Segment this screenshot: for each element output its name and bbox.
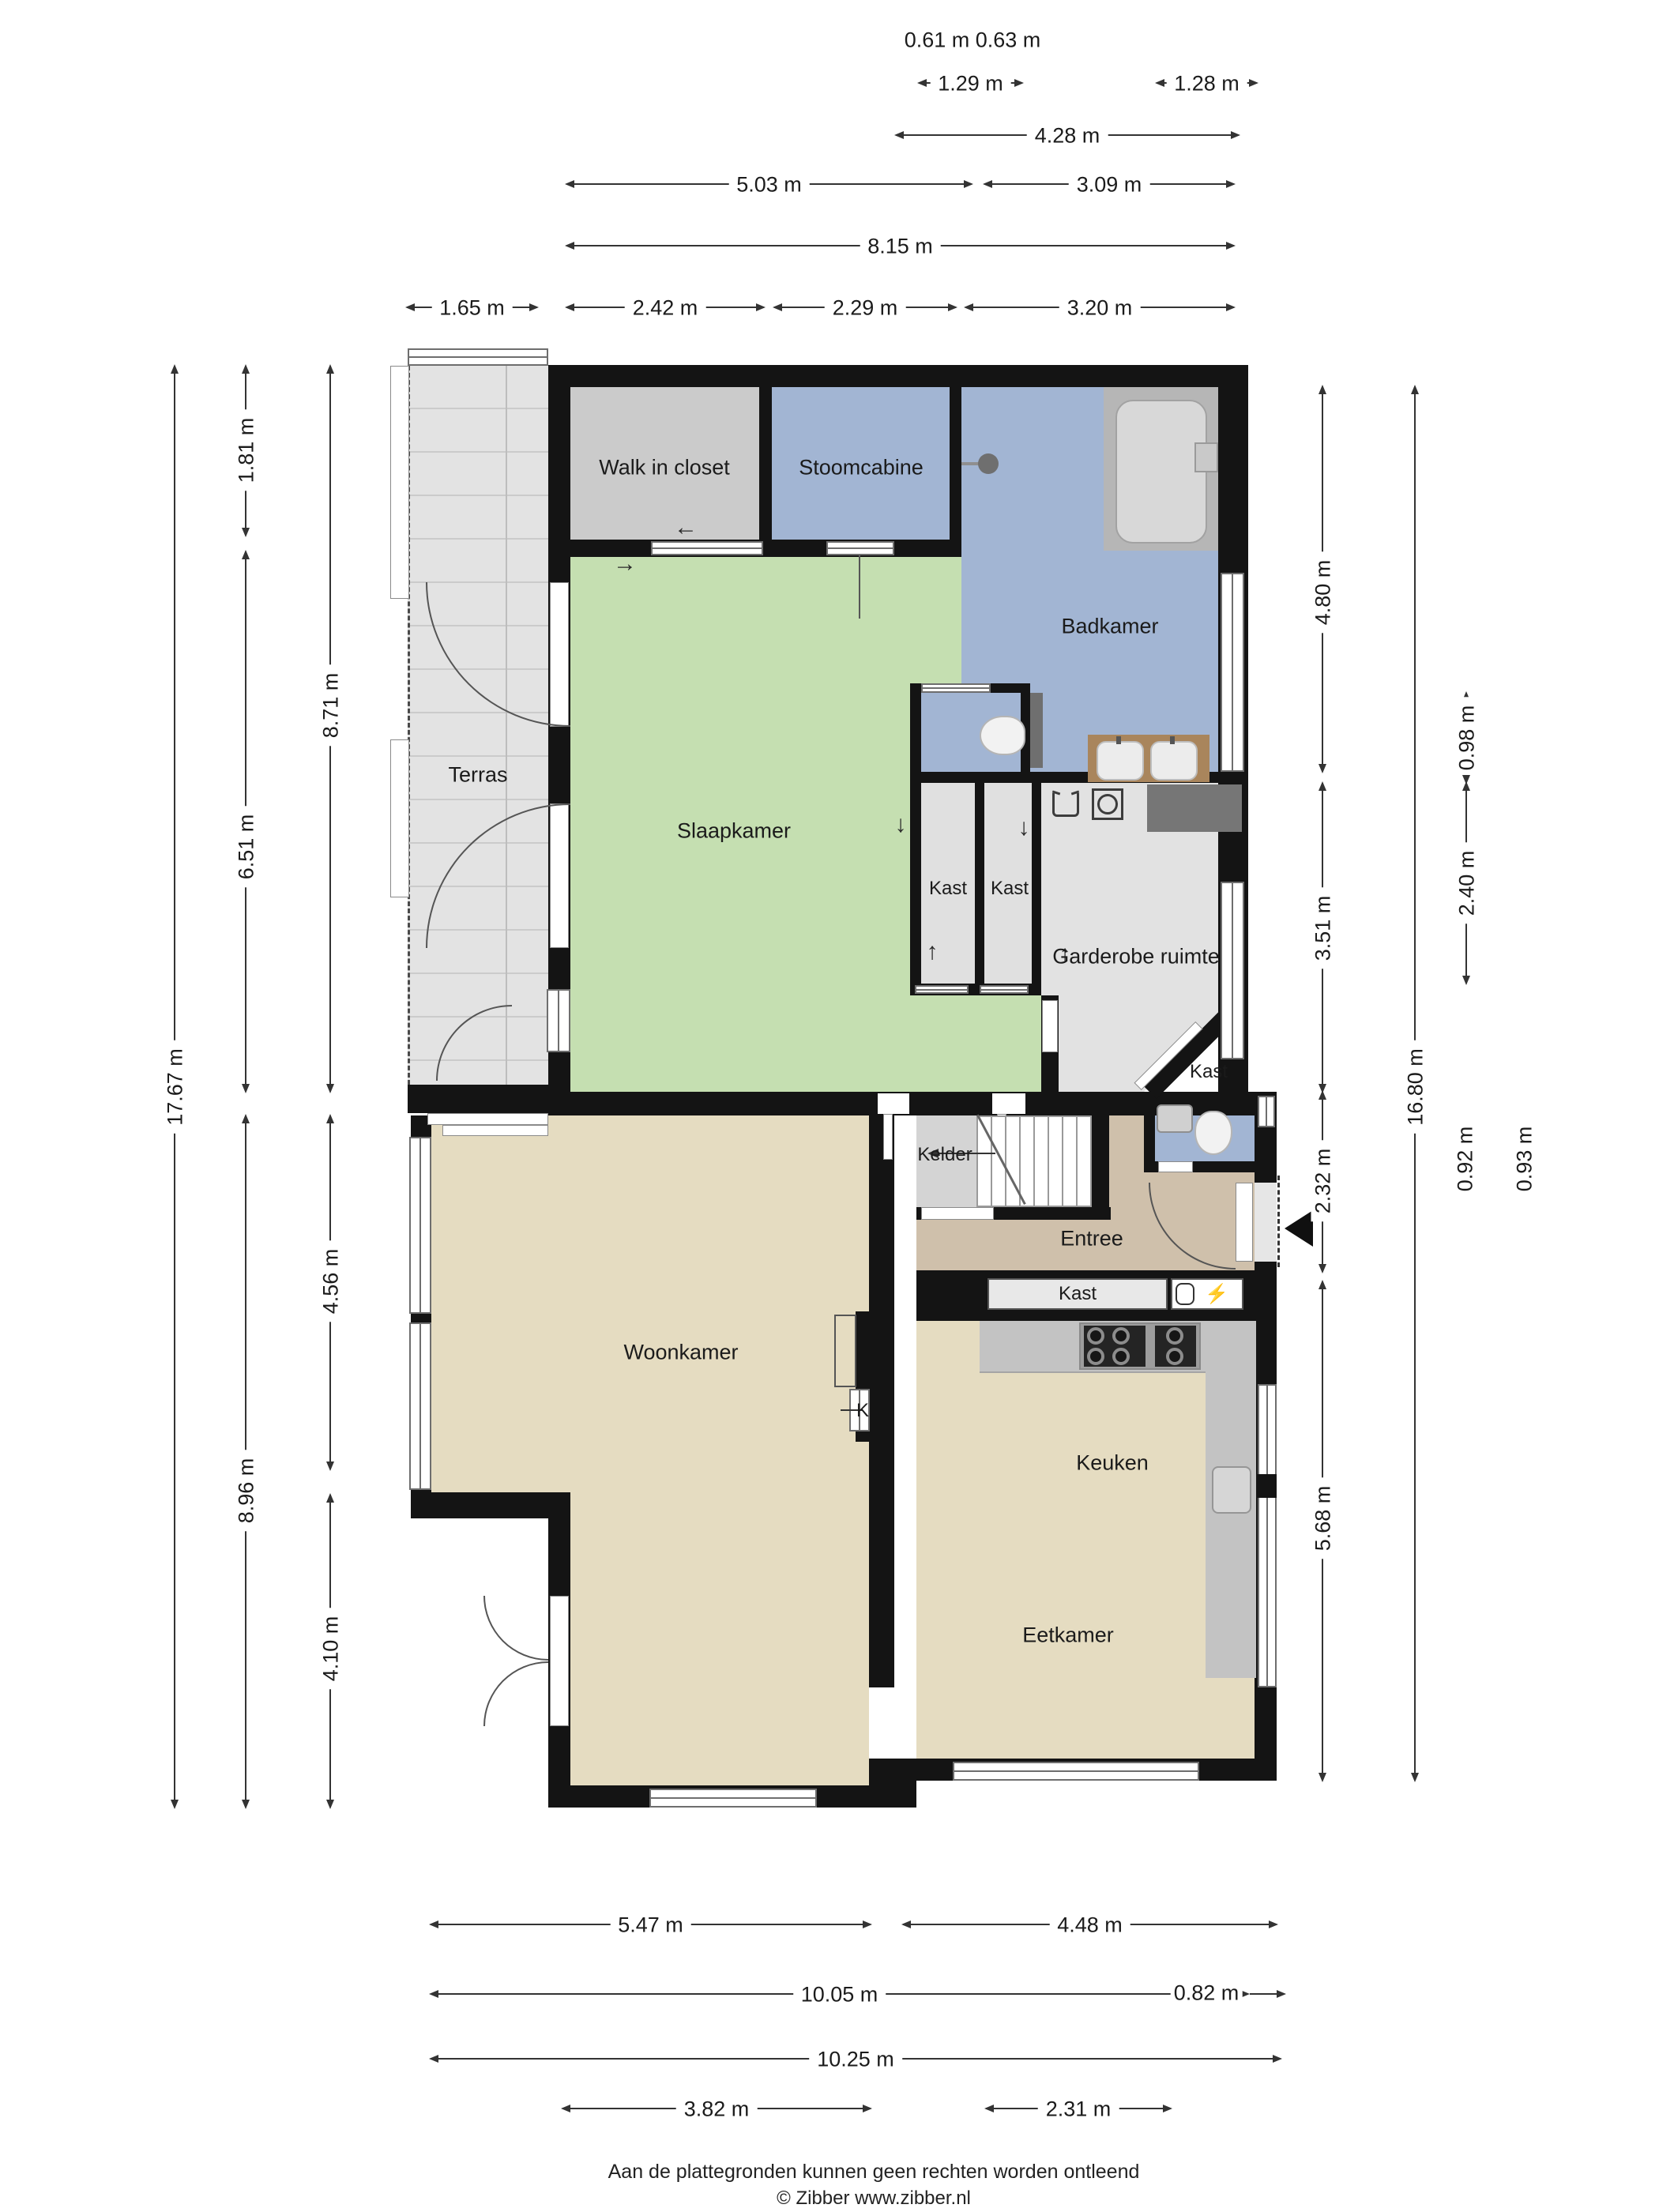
room-terras	[408, 366, 548, 1085]
sink-icon-2	[1150, 741, 1198, 781]
dim-bottom-1005: 10.05 m	[431, 1993, 1248, 1995]
dim-right-1680: 16.80 m	[1414, 386, 1416, 1781]
terras-railing-left1	[390, 366, 409, 599]
dim-right-351: 3.51 m	[1322, 783, 1323, 1092]
sink-faucet-2	[1170, 736, 1175, 744]
dim-bottom-082	[1250, 1993, 1285, 1995]
toilet-icon-badkamer	[980, 716, 1025, 755]
dim-bottom-448: 4.48 m	[903, 1924, 1277, 1925]
label-slaapkamer: Slaapkamer	[677, 819, 791, 844]
room-woonkamer-lower	[570, 1492, 894, 1793]
dim-top-242: 2.42 m	[566, 307, 764, 308]
woonkamer-window2	[409, 1322, 431, 1490]
dim-left-410: 4.10 m	[329, 1495, 331, 1808]
walkincloset-sliding-door	[651, 541, 763, 555]
terras-step1	[427, 1113, 548, 1125]
burner-icon	[1112, 1327, 1130, 1345]
footer: Aan de plattegronden kunnen geen rechten…	[608, 2158, 1140, 2212]
dim-right-093: 0.93 m	[1513, 1123, 1537, 1195]
terras-deck-line	[506, 366, 507, 1085]
arrow-left-icon: ←	[674, 514, 698, 541]
front-door-leaf	[1236, 1183, 1253, 1262]
burner-icon	[1166, 1348, 1183, 1365]
dim-left-871: 8.71 m	[329, 366, 331, 1092]
french-door-opening	[550, 1596, 569, 1726]
label-garderobe: Garderobe ruimte	[1052, 945, 1220, 969]
entrance-arrow-icon	[1285, 1210, 1313, 1247]
stoomcabine-door	[826, 541, 894, 555]
dim-right-240: 2.40 m	[1465, 783, 1467, 984]
label-kast-gang: Kast	[1059, 1283, 1097, 1305]
wall-wc1-left	[910, 683, 921, 783]
dark-cabinet	[1147, 784, 1242, 832]
laundry-tub-icon	[1052, 793, 1079, 817]
wc2-sink-icon	[1157, 1104, 1193, 1133]
dim-bottom-082-label: 0.82 m	[1171, 1981, 1243, 2006]
garderobe-slaapkamer-door	[1042, 1000, 1058, 1052]
sink-faucet-1	[1116, 736, 1121, 744]
terras-railing-top	[408, 348, 548, 366]
footer-copyright: © Zibber www.zibber.nl	[608, 2185, 1140, 2212]
kast2-front	[980, 985, 1029, 994]
label-terras: Terras	[448, 763, 507, 788]
keuken-window-pier	[1258, 1474, 1277, 1498]
wc2-door	[1158, 1161, 1193, 1172]
dim-left-896: 8.96 m	[245, 1115, 246, 1808]
garderobe-mid-opening	[992, 1093, 1025, 1114]
room-woonkamer-upper	[431, 1115, 894, 1492]
garderobe-window	[1221, 882, 1244, 1059]
french-door-arc-bottom	[483, 1661, 548, 1726]
label-kelder: Kelder	[917, 1144, 972, 1166]
dim-right-232: 2.32 m	[1322, 1092, 1323, 1272]
dim-left-181: 1.81 m	[245, 366, 246, 536]
label-eetkamer: Eetkamer	[1022, 1623, 1114, 1648]
dim-top-128: 1.28 m	[1157, 82, 1257, 84]
wall-terras-bottom	[408, 1085, 570, 1113]
woonkamer-bottom-window	[649, 1789, 817, 1808]
label-kast-hoek: Kast	[1190, 1061, 1228, 1083]
label-stoomcabine: Stoomcabine	[799, 456, 924, 480]
fireplace-niche	[834, 1315, 856, 1387]
dim-top-815: 8.15 m	[566, 245, 1234, 246]
kitchen-sink-icon	[1212, 1466, 1251, 1514]
kelder-stairs	[976, 1115, 1092, 1207]
arrow-right-icon: →	[613, 551, 637, 577]
dim-right-098: 0.98 m	[1465, 693, 1467, 783]
dim-bottom-231: 2.31 m	[986, 2108, 1171, 2109]
wall-stairs-right	[1092, 1115, 1109, 1220]
dim-bottom-547: 5.47 m	[431, 1924, 871, 1925]
room-keuken-eetkamer	[916, 1321, 1255, 1759]
sink-icon-1	[1097, 741, 1144, 781]
dim-top-428: 4.28 m	[896, 134, 1239, 136]
burner-icon	[1166, 1327, 1183, 1345]
dim-top-063: 0.63 m	[972, 28, 1044, 53]
footer-disclaimer: Aan de plattegronden kunnen geen rechten…	[608, 2158, 1140, 2185]
electric-meter-icon: ⚡	[1205, 1283, 1228, 1306]
burner-icon	[1087, 1348, 1104, 1365]
eetkamer-window	[953, 1762, 1199, 1781]
dim-top-309: 3.09 m	[984, 183, 1234, 185]
label-badkamer: Badkamer	[1061, 615, 1158, 639]
dim-top-129: 1.29 m	[919, 82, 1022, 84]
bathtub-icon	[1115, 400, 1207, 544]
wall-bay-bottom	[411, 1492, 570, 1518]
dim-left-1767: 17.67 m	[174, 366, 175, 1808]
kast1-front	[915, 985, 969, 994]
woonkamer-window1	[409, 1137, 431, 1314]
dim-right-480: 4.80 m	[1322, 386, 1323, 772]
label-kast1: Kast	[929, 878, 967, 900]
wall-stoomcabine-divider	[950, 386, 961, 551]
arrow-down-icon: ↓	[1018, 814, 1030, 841]
slaapkamer-mid-door-leaf	[883, 1114, 893, 1160]
dim-bottom-1025: 10.25 m	[431, 2058, 1281, 2060]
dim-top-061: 0.61 m	[901, 28, 973, 53]
dim-bottom-382: 3.82 m	[562, 2108, 871, 2109]
keuken-window	[1258, 1384, 1277, 1687]
wall-kast-mid	[975, 783, 984, 984]
arrow-down-icon: ↓	[895, 811, 907, 838]
room-slaapkamer-ext	[961, 995, 1041, 1092]
label-kast-k: K	[856, 1400, 869, 1422]
dim-top-320: 3.20 m	[965, 307, 1234, 308]
wall-kast-right	[1032, 783, 1041, 984]
wall-kast-left	[910, 783, 921, 984]
terras-railing-left2	[390, 739, 409, 897]
dim-left-651: 6.51 m	[245, 551, 246, 1092]
front-door-dashed-line	[1277, 1176, 1280, 1267]
stoomcabine-door-leaf	[859, 555, 860, 619]
wc2-window	[1258, 1096, 1275, 1127]
dim-top-165: 1.65 m	[407, 307, 537, 308]
wc1-pillar	[1030, 693, 1043, 768]
dim-top-503: 5.03 m	[566, 183, 972, 185]
burner-icon	[1087, 1327, 1104, 1345]
toilet-icon-entree	[1194, 1111, 1232, 1155]
washing-machine-icon	[1092, 788, 1123, 820]
wc1-door	[921, 683, 991, 693]
shower-head-icon	[978, 453, 999, 474]
label-kast2: Kast	[991, 878, 1029, 900]
slaapkamer-terras-window	[547, 989, 570, 1052]
dim-right-568: 5.68 m	[1322, 1281, 1323, 1781]
woonkamer-eetkamer-doorway	[869, 1687, 894, 1759]
bathtub-faucet-icon	[1194, 442, 1218, 472]
label-entree: Entree	[1060, 1227, 1123, 1251]
slaapkamer-mid-opening	[878, 1093, 909, 1114]
dim-right-092: 0.92 m	[1454, 1123, 1478, 1195]
french-door-arc-top	[483, 1596, 548, 1661]
label-walk-in-closet: Walk in closet	[599, 456, 730, 480]
badkamer-window	[1221, 573, 1244, 772]
wall-closet-divider	[759, 386, 772, 541]
dim-left-456: 4.56 m	[329, 1115, 331, 1469]
floorplan-canvas: ← →	[0, 0, 1659, 2212]
terras-step2	[442, 1125, 548, 1136]
dim-top-229: 2.29 m	[774, 307, 956, 308]
label-woonkamer: Woonkamer	[623, 1341, 738, 1365]
label-keuken: Keuken	[1076, 1451, 1149, 1476]
arrow-up-icon: ↑	[927, 939, 939, 965]
kelder-door	[921, 1207, 994, 1220]
wall-top	[548, 365, 1248, 387]
front-door-opening	[1255, 1183, 1277, 1262]
burner-icon	[1112, 1348, 1130, 1365]
water-meter-icon	[1176, 1283, 1194, 1305]
